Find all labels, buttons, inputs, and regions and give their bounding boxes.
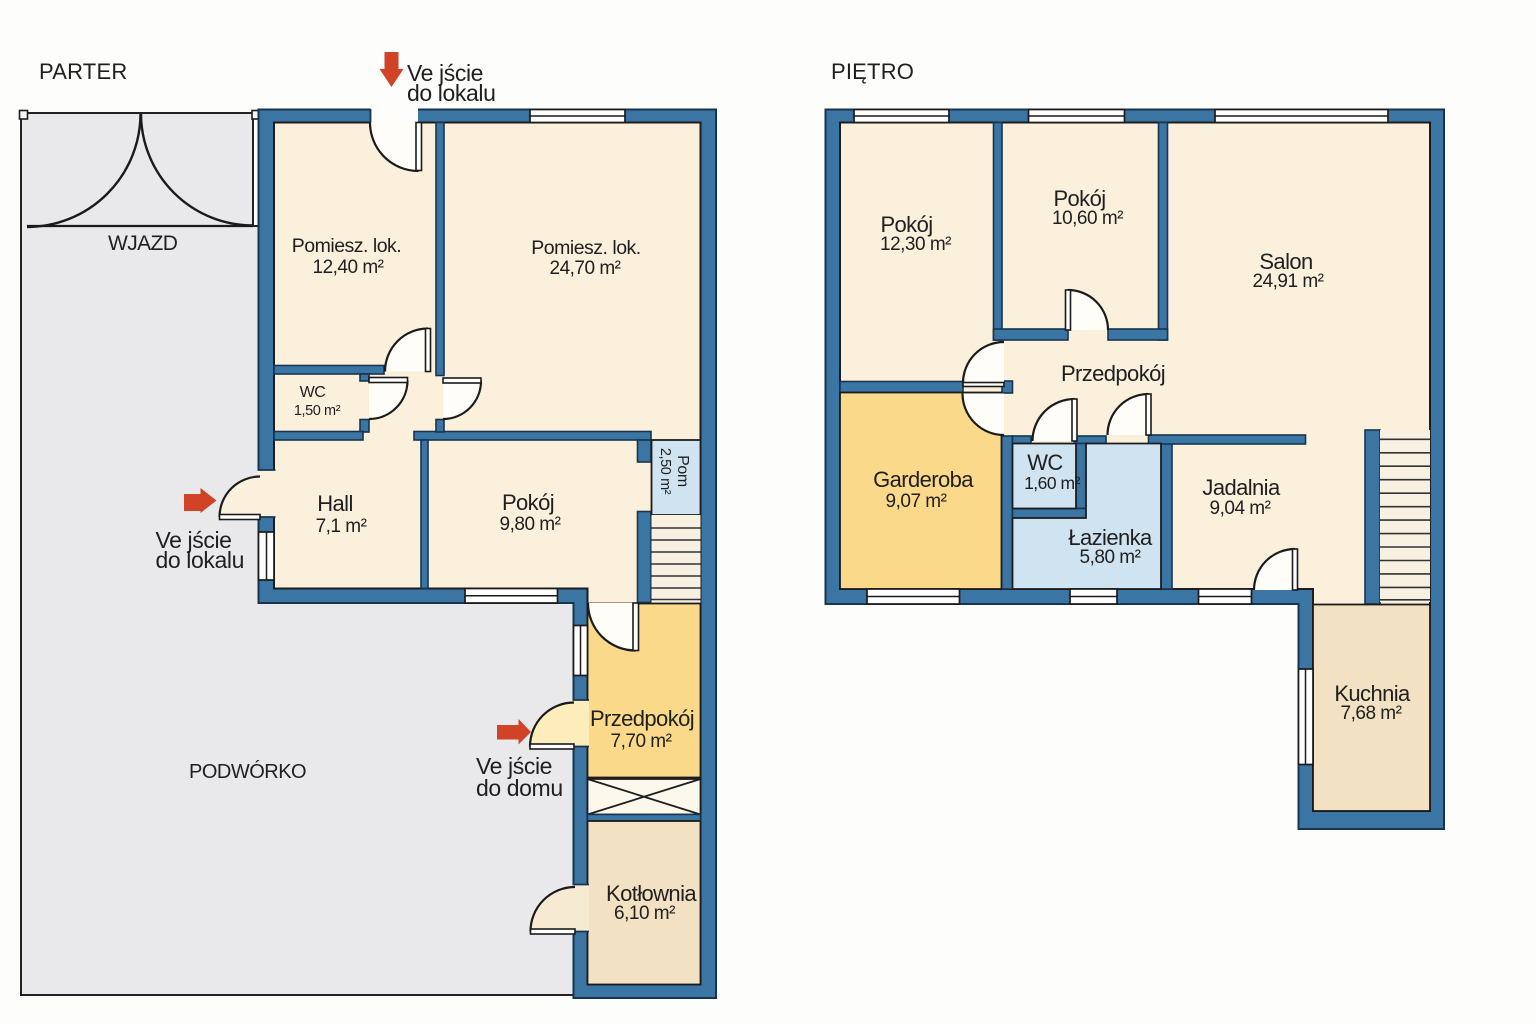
svg-text:1,50 m²: 1,50 m² [294, 403, 341, 419]
svg-text:12,40 m²: 12,40 m² [313, 257, 384, 278]
svg-text:do lokalu: do lokalu [407, 80, 495, 106]
svg-text:do domu: do domu [476, 775, 563, 801]
svg-text:6,10 m²: 6,10 m² [614, 903, 675, 924]
svg-text:9,07 m²: 9,07 m² [886, 491, 947, 512]
svg-text:PARTER: PARTER [39, 59, 127, 84]
svg-text:9,80 m²: 9,80 m² [500, 514, 561, 535]
svg-text:10,60 m²: 10,60 m² [1052, 208, 1123, 229]
svg-text:Pomiesz. lok.: Pomiesz. lok. [292, 235, 401, 257]
svg-text:7,1 m²: 7,1 m² [316, 516, 367, 537]
svg-text:12,30 m²: 12,30 m² [880, 234, 951, 255]
svg-text:9,04 m²: 9,04 m² [1210, 498, 1271, 519]
svg-text:5,80 m²: 5,80 m² [1080, 547, 1141, 568]
svg-text:PIĘTRO: PIĘTRO [831, 59, 914, 84]
svg-text:Przedpokój: Przedpokój [590, 706, 694, 731]
svg-text:7,68 m²: 7,68 m² [1341, 703, 1402, 724]
svg-text:PODWÓRKO: PODWÓRKO [189, 760, 306, 783]
svg-text:Garderoba: Garderoba [873, 467, 974, 492]
svg-text:Pomiesz. lok.: Pomiesz. lok. [531, 237, 640, 259]
svg-text:24,70 m²: 24,70 m² [550, 258, 621, 279]
svg-text:WJAZD: WJAZD [108, 232, 178, 255]
svg-text:24,91 m²: 24,91 m² [1253, 271, 1324, 292]
svg-text:Pokój: Pokój [502, 490, 554, 515]
svg-text:WC: WC [1027, 450, 1063, 475]
svg-text:Hall: Hall [317, 491, 353, 516]
svg-text:Jadalnia: Jadalnia [1202, 475, 1281, 500]
svg-text:do lokalu: do lokalu [156, 547, 244, 573]
svg-text:Przedpokój: Przedpokój [1061, 361, 1165, 386]
svg-text:1,60 m²: 1,60 m² [1024, 473, 1080, 493]
svg-text:WC: WC [300, 384, 326, 401]
svg-text:2,50 m²: 2,50 m² [657, 448, 673, 495]
svg-text:Pom: Pom [674, 455, 691, 487]
svg-text:7,70 m²: 7,70 m² [611, 731, 672, 752]
